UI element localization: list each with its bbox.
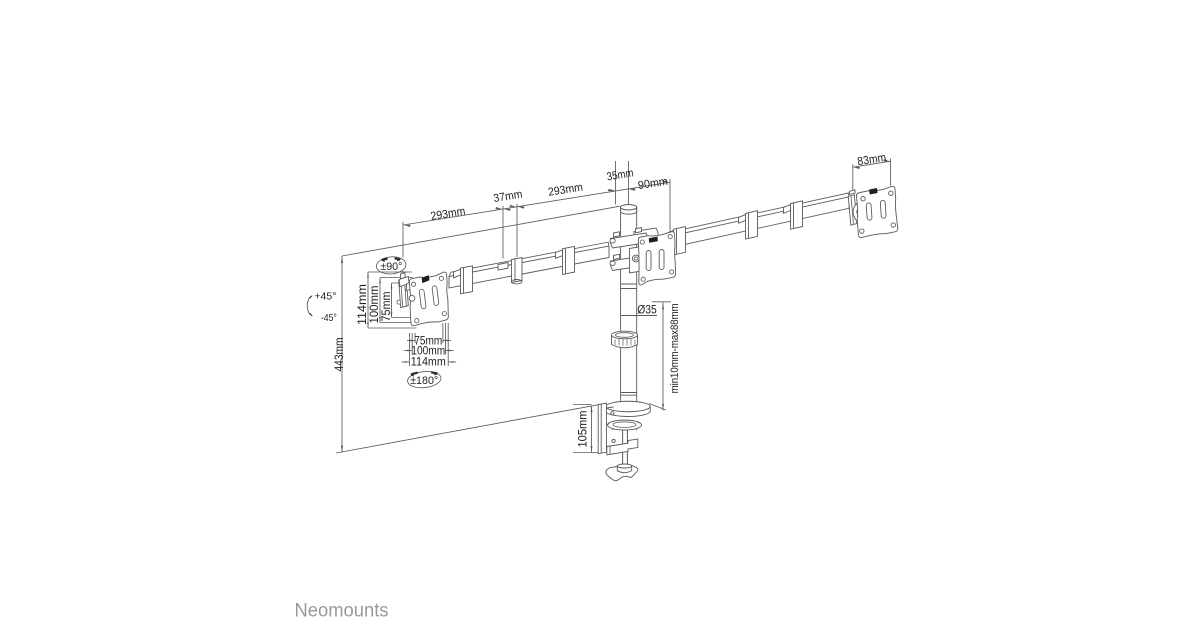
svg-text:-45°: -45° <box>321 312 337 324</box>
svg-text:90mm: 90mm <box>637 176 669 193</box>
svg-text:293mm: 293mm <box>430 206 466 223</box>
svg-text:114mm: 114mm <box>411 357 446 369</box>
svg-text:443mm: 443mm <box>334 338 346 372</box>
svg-text:±180°: ±180° <box>410 375 438 387</box>
svg-text:+45°: +45° <box>314 290 336 302</box>
svg-text:293mm: 293mm <box>547 182 583 199</box>
svg-text:83mm: 83mm <box>857 152 888 168</box>
svg-text:Neomounts: Neomounts <box>295 600 389 622</box>
svg-text:Ø35: Ø35 <box>637 303 657 317</box>
svg-text:35mm: 35mm <box>606 167 635 183</box>
svg-text:min10mm-max88mm: min10mm-max88mm <box>669 303 681 393</box>
svg-text:37mm: 37mm <box>493 189 524 205</box>
svg-text:105mm: 105mm <box>578 411 590 448</box>
svg-text:±90°: ±90° <box>380 261 402 273</box>
svg-text:75mm: 75mm <box>381 292 393 322</box>
svg-text:114mm: 114mm <box>357 284 369 325</box>
svg-text:100mm: 100mm <box>369 286 381 324</box>
